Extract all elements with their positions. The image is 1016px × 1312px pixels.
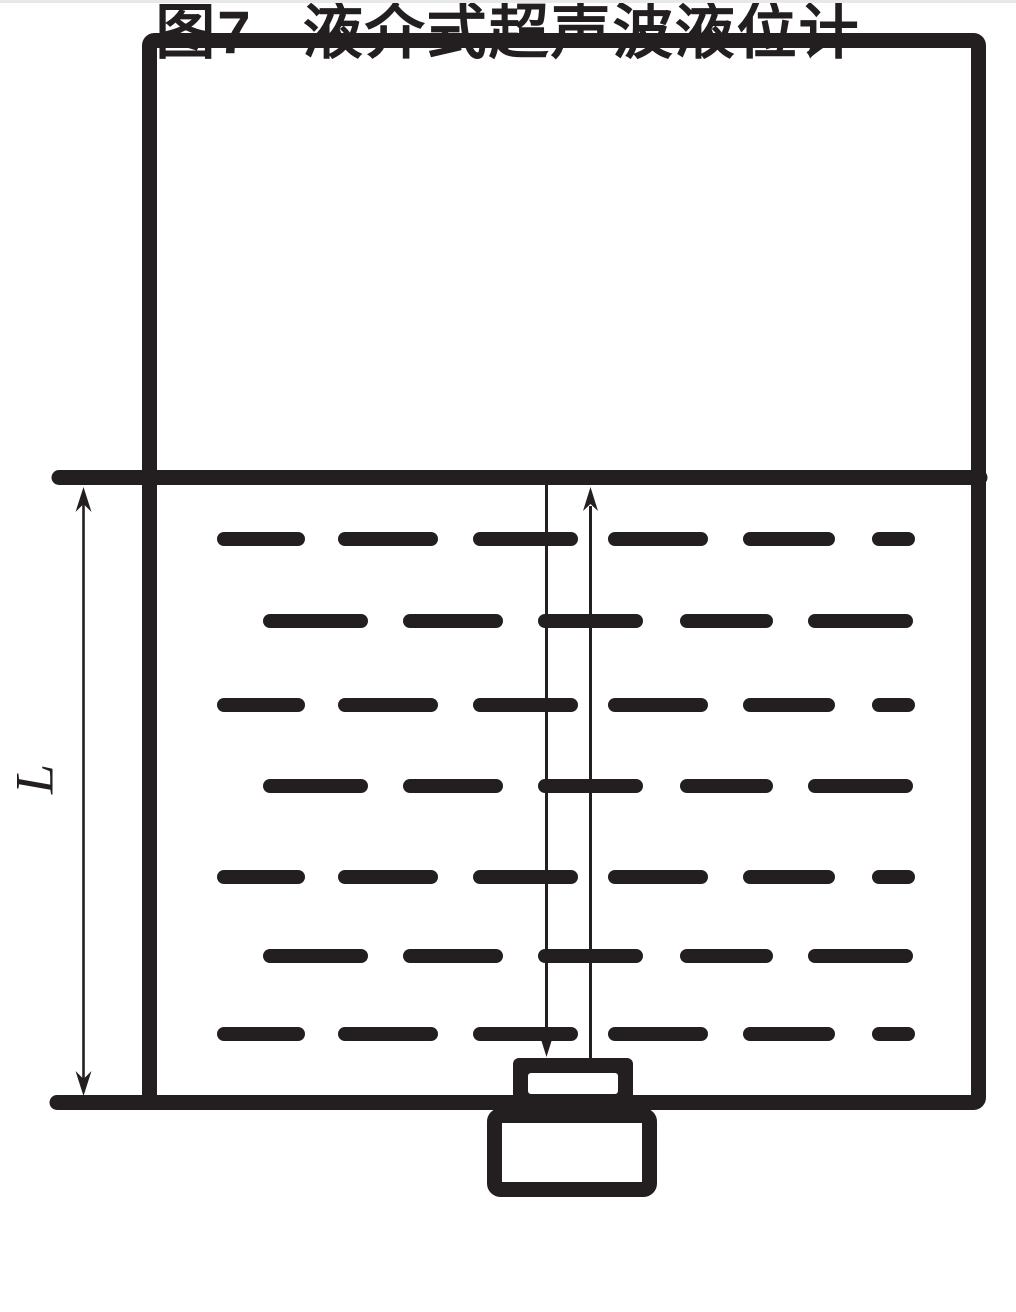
tank-outline [150, 41, 979, 1103]
transducer [495, 1058, 650, 1190]
echo-path [539, 484, 598, 1058]
transducer-window [528, 1073, 618, 1094]
figure-title: 液介式超声波液位计 [303, 0, 861, 66]
tank [57, 41, 979, 1103]
figure-page: L 图7 液介式超声波液位计 [0, 0, 1016, 1312]
dimension-label-L: L [4, 764, 64, 795]
figure-number: 图7 [155, 0, 252, 66]
liquid-dashes [224, 539, 908, 1034]
bottom-separator-line [0, 0, 1016, 3]
figure-caption: 图7 液介式超声波液位计 [0, 0, 1016, 66]
ultrasonic-level-meter-diagram: L [0, 0, 1016, 1218]
dimension-L: L [4, 487, 91, 1096]
transducer-housing [495, 1116, 650, 1190]
